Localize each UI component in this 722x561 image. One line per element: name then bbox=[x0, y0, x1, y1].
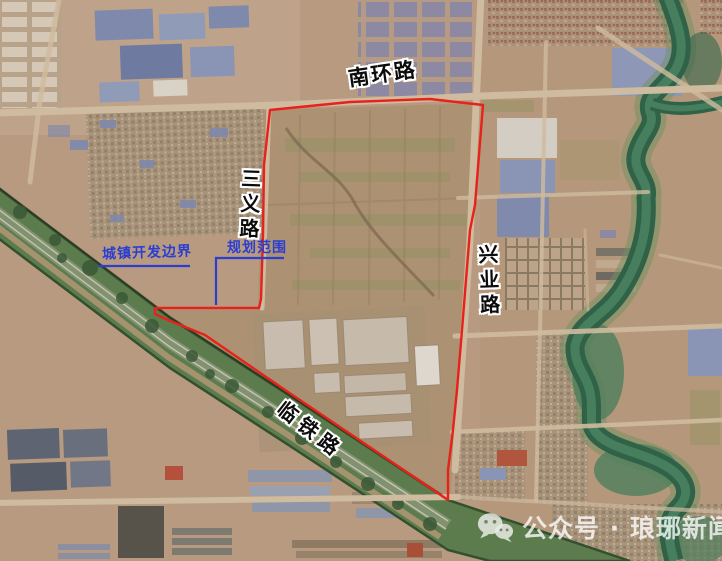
wechat-icon bbox=[476, 511, 514, 544]
urban-development-boundary-label: 城镇开发边界 bbox=[102, 240, 193, 263]
watermark: 公众号 · 琅琊新闻网 bbox=[476, 509, 722, 545]
road-label-sanyi: 三义路 bbox=[237, 168, 260, 244]
watermark-text: 公众号 · 琅琊新闻网 bbox=[522, 509, 722, 545]
road-label-xingye: 兴业路 bbox=[476, 244, 499, 320]
planning-scope-label: 规划范围 bbox=[227, 237, 287, 257]
satellite-map-screenshot: 南环路 三义路 兴业路 临铁路 城镇开发边界 规划范围 公众号 · 琅琊新闻网 bbox=[0, 0, 722, 561]
